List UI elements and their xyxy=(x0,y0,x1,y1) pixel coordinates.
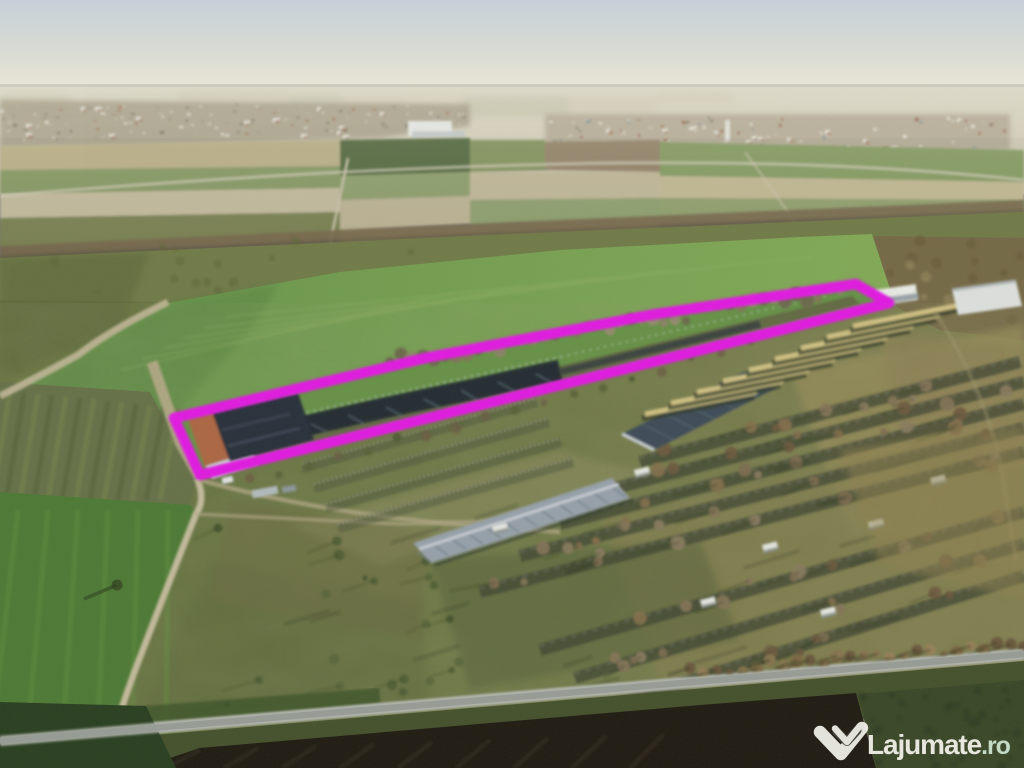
svg-text:Lajumate.ro: Lajumate.ro xyxy=(867,729,1011,760)
